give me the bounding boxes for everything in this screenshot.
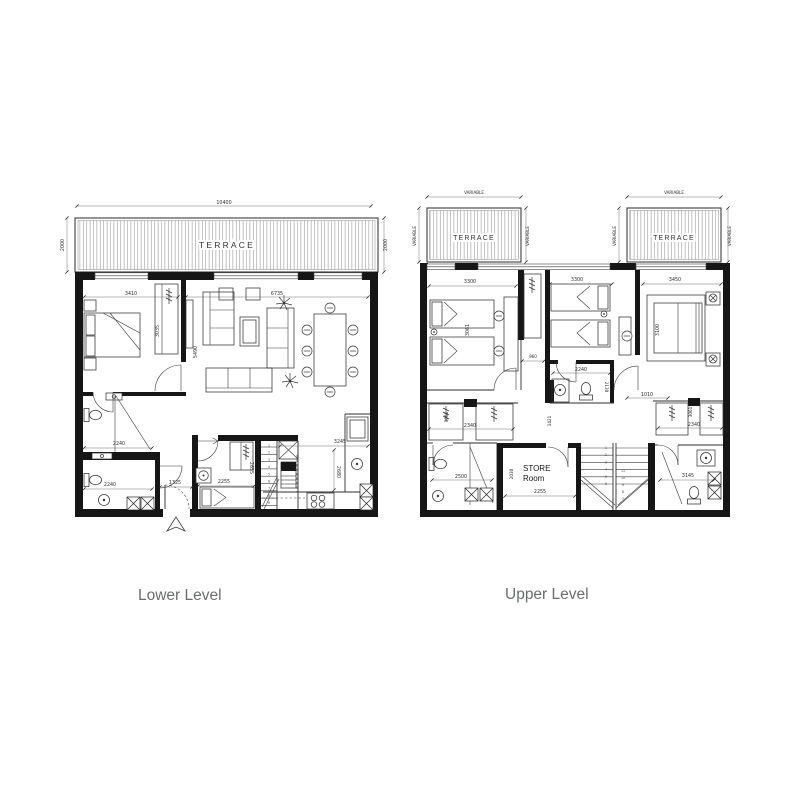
dimension-label: 3450 bbox=[669, 277, 681, 283]
shaft-icon bbox=[141, 497, 154, 510]
shaft-icon bbox=[360, 484, 373, 497]
stair-step-number: 2 bbox=[605, 453, 607, 457]
dining-chair bbox=[302, 325, 312, 335]
sink-icon bbox=[433, 491, 444, 502]
dimension-label: 2500 bbox=[455, 474, 467, 480]
maid-room bbox=[196, 442, 254, 508]
dimension-label: 3410 bbox=[125, 291, 137, 297]
stair-step-number: 8 bbox=[622, 490, 624, 494]
stairs bbox=[261, 441, 298, 509]
stair-step-number: 5 bbox=[268, 472, 270, 476]
stair-step-number: 9 bbox=[268, 501, 270, 505]
dimension-label: 2130 bbox=[604, 382, 609, 393]
stair-step-number: 1 bbox=[605, 446, 607, 450]
stair-step-number: 4 bbox=[605, 468, 607, 472]
floor-plan-drawing: TERRACE bbox=[0, 0, 800, 800]
dimension-label: 2240 bbox=[113, 441, 125, 447]
dimension-label: VARIABLE bbox=[664, 190, 684, 195]
sink-icon bbox=[99, 495, 110, 506]
entrance-arrow bbox=[167, 517, 185, 531]
dimension-label: 10400 bbox=[216, 200, 231, 206]
dimension-label: 2030 bbox=[509, 468, 514, 479]
dimension-label: 2255 bbox=[534, 489, 546, 495]
desk-chair bbox=[494, 346, 504, 356]
closet-rail-icon bbox=[166, 288, 172, 304]
toilet-icon bbox=[429, 458, 447, 471]
stair-step-number: 6 bbox=[605, 482, 607, 486]
dining-chair bbox=[302, 367, 312, 377]
lamp-icon bbox=[709, 355, 717, 363]
bedroom1-furniture bbox=[430, 274, 541, 371]
dimension-label: 6735 bbox=[271, 291, 283, 297]
stair-step-number: 6 bbox=[268, 480, 270, 484]
terrace-label: TERRACE bbox=[653, 235, 695, 242]
closet-rail-icon bbox=[243, 444, 249, 460]
upper-terrace-right: TERRACE bbox=[627, 208, 721, 262]
closet-rail-icon bbox=[669, 405, 675, 421]
dimension-label: 5490 bbox=[193, 346, 199, 358]
shaft-icon bbox=[480, 488, 493, 501]
dining-chair bbox=[348, 325, 358, 335]
shaft-icon bbox=[708, 486, 721, 499]
upper-level-title: Upper Level bbox=[505, 586, 589, 603]
stair-step-number: 9 bbox=[622, 483, 624, 487]
stair-step-number: 1 bbox=[268, 444, 270, 448]
stair-step-number: 3 bbox=[605, 460, 607, 464]
dining-chair bbox=[348, 346, 358, 356]
shaft-icon bbox=[465, 488, 478, 501]
kitchen-sink-icon bbox=[352, 459, 363, 470]
closet-rail-icon bbox=[491, 406, 497, 422]
dimension-label: 3061 bbox=[444, 411, 449, 422]
dining-furniture bbox=[302, 303, 358, 397]
closet-rail-icon bbox=[708, 405, 714, 421]
desk-chair bbox=[494, 311, 504, 321]
shaft-icon bbox=[360, 497, 373, 510]
dimension-label: 3145 bbox=[682, 473, 694, 479]
shaft-icon bbox=[127, 497, 140, 510]
dimension-label: 3035 bbox=[155, 325, 161, 337]
dimension-label: 3300 bbox=[571, 277, 583, 283]
dimension-label: VARIABLE bbox=[464, 190, 484, 195]
upper-terrace-left: TERRACE bbox=[427, 208, 521, 262]
dimension-label: 2000 bbox=[60, 239, 66, 251]
lower-terrace: TERRACE bbox=[75, 218, 378, 272]
dimension-label: 2655 bbox=[248, 462, 254, 474]
stair-step-number: 11 bbox=[621, 469, 625, 473]
dimension-label: 3061 bbox=[465, 324, 471, 336]
dimension-label: 3245 bbox=[334, 439, 346, 445]
lamp-icon bbox=[709, 294, 717, 302]
toilet-icon bbox=[580, 383, 593, 401]
living-furniture bbox=[203, 288, 298, 392]
dimension-label: 960 bbox=[529, 354, 537, 359]
dining-chair bbox=[302, 346, 312, 356]
toilet-icon bbox=[84, 409, 102, 422]
windows bbox=[95, 273, 362, 279]
mid-bathroom-fixtures bbox=[552, 379, 593, 402]
dimension-label: 1325 bbox=[169, 480, 181, 486]
stair-step-number: 5 bbox=[605, 475, 607, 479]
dimension-label: 1421 bbox=[547, 415, 552, 426]
dimension-label: VARIABLE bbox=[612, 226, 617, 246]
dimension-label: 2680 bbox=[335, 466, 341, 478]
upper-level-plan: TERRACE TERRACE bbox=[420, 208, 730, 517]
sink-icon bbox=[555, 385, 566, 396]
dimension-label: VARIABLE bbox=[525, 226, 530, 246]
dimension-label: 2240 bbox=[104, 482, 116, 488]
sink-icon bbox=[701, 453, 712, 464]
shaft-icon bbox=[708, 472, 721, 485]
dimension-label: 2340 bbox=[464, 423, 476, 429]
dimension-label: 1010 bbox=[641, 392, 653, 398]
stair-step-number: 7 bbox=[622, 497, 624, 501]
dimension-label: 3100 bbox=[655, 324, 661, 336]
store-room-label: Room bbox=[523, 474, 545, 483]
closet-rail-icon bbox=[529, 277, 535, 293]
dimension-label: 3300 bbox=[464, 279, 476, 285]
dimension-label: 2000 bbox=[383, 239, 389, 251]
closets bbox=[429, 403, 723, 440]
stair-step-number: 10 bbox=[621, 476, 625, 480]
dining-chair bbox=[348, 367, 358, 377]
dining-chair bbox=[325, 303, 335, 313]
bathroom-fixtures bbox=[84, 393, 150, 506]
dimension-label: VARIABLE bbox=[727, 226, 732, 246]
store-room-label: STORE bbox=[523, 464, 550, 473]
dimension-label: 3061 bbox=[688, 406, 693, 417]
lower-level-title: Lower Level bbox=[138, 587, 222, 604]
dining-chair bbox=[325, 387, 335, 397]
stair-step-number: 7 bbox=[268, 487, 270, 491]
stairs bbox=[581, 443, 650, 510]
stair-step-number: 2 bbox=[268, 451, 270, 455]
terrace-label: TERRACE bbox=[199, 240, 255, 250]
desk-chair bbox=[622, 331, 632, 341]
plant-icon bbox=[282, 373, 298, 388]
dimension-label: 2340 bbox=[688, 422, 700, 428]
dimension-label: VARIABLE bbox=[412, 226, 417, 246]
dimension-label: 2240 bbox=[575, 367, 587, 373]
stair-step-number: 8 bbox=[268, 494, 270, 498]
toilet-icon bbox=[688, 487, 701, 505]
toilet-icon bbox=[84, 474, 102, 487]
stair-step-number: 3 bbox=[268, 458, 270, 462]
terrace-label: TERRACE bbox=[453, 235, 495, 242]
dimension-label: 2255 bbox=[218, 479, 230, 485]
stair-step-number: 4 bbox=[268, 465, 270, 469]
store-room: STORE Room bbox=[523, 464, 550, 483]
bedroom2-furniture bbox=[551, 284, 632, 355]
